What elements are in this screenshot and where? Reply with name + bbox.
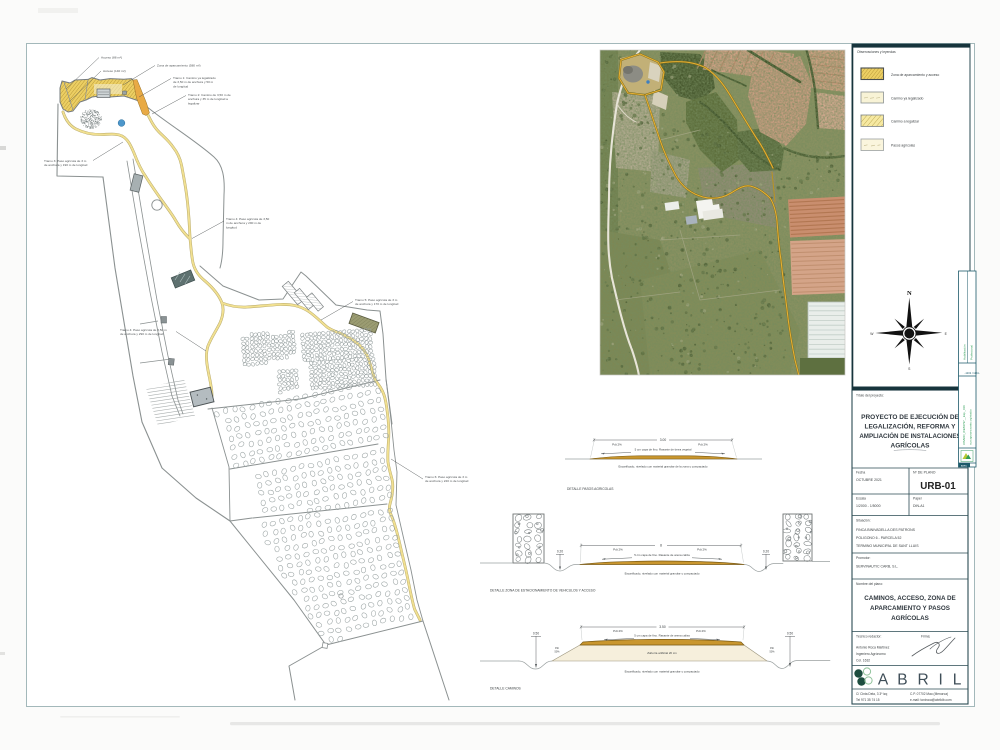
svg-text:50%: 50% (769, 650, 775, 653)
svg-text:PROYECTO DE EJECUCIÓN DE: PROYECTO DE EJECUCIÓN DE (861, 412, 959, 421)
svg-text:e-mail: toniroca@abrildb.com: e-mail: toniroca@abrildb.com (910, 698, 952, 702)
svg-text:AGRÍCOLAS: AGRÍCOLAS (891, 613, 929, 622)
svg-text:N: N (907, 290, 912, 297)
svg-text:FINCA BINIVADELLA DES PATRONS: FINCA BINIVADELLA DES PATRONS (856, 528, 916, 532)
svg-text:Habilitación: Habilitación (963, 344, 967, 360)
svg-text:3.00: 3.00 (660, 438, 667, 442)
svg-text:C.P. 07702 Mao (Menorca): C.P. 07702 Mao (Menorca) (910, 692, 948, 696)
svg-text:Escarificado, nivelado con mat: Escarificado, nivelado con material gran… (625, 572, 700, 576)
svg-text:Ingeniero Agrónomo: Ingeniero Agrónomo (856, 652, 886, 656)
svg-text:Zona de aparcamiento y acceso: Zona de aparcamiento y acceso (891, 73, 939, 77)
svg-text:longitud: longitud (226, 225, 237, 229)
svg-text:0.50: 0.50 (787, 631, 793, 635)
svg-text:Nº DE PLANO: Nº DE PLANO (913, 471, 936, 475)
svg-text:AMPLIACIÓN DE INSTALACIONES: AMPLIACIÓN DE INSTALACIONES (859, 432, 960, 440)
svg-text:APARCAMIENTO Y PASOS: APARCAMIENTO Y PASOS (870, 605, 950, 612)
svg-text:URB-01: URB-01 (920, 481, 956, 492)
svg-text:de anchura y 290 m de longitud: de anchura y 290 m de longitud (120, 332, 164, 336)
svg-text:POLIGONO 6 - PARCELA 52: POLIGONO 6 - PARCELA 52 (856, 536, 902, 540)
svg-text:DETALLE PASOS AGRICOLAS: DETALLE PASOS AGRICOLAS (567, 487, 614, 491)
svg-text:-1202 / 1141-: -1202 / 1141- (965, 371, 980, 375)
svg-text:Zahorra artificial 20 cm: Zahorra artificial 20 cm (647, 651, 677, 655)
svg-text:SERVINAUTIC CARB, S.L.: SERVINAUTIC CARB, S.L. (856, 565, 898, 569)
svg-text:0.20: 0.20 (763, 549, 769, 553)
svg-text:Observaciones y leyendas: Observaciones y leyendas (857, 50, 896, 54)
svg-text:DETALLE ZONA DE ESTACIONAMIENT: DETALLE ZONA DE ESTACIONAMIENTO DE VEHIC… (490, 589, 596, 593)
svg-text:OCTUBRE 2021: OCTUBRE 2021 (856, 478, 882, 482)
svg-text:DIN-A1: DIN-A1 (913, 504, 925, 508)
svg-text:Promotor:: Promotor: (856, 556, 871, 560)
svg-text:ABRIL: ABRIL (961, 464, 968, 467)
svg-text:5 cm capa de fino. Rasante de: 5 cm capa de fino. Rasante de arena cali… (634, 634, 690, 638)
svg-text:0.50: 0.50 (533, 631, 539, 635)
svg-text:VISADO_WEB3797__Exp._039: VISADO_WEB3797__Exp._039 (962, 405, 966, 445)
svg-text:Pdt 2%: Pdt 2% (613, 629, 623, 633)
svg-text:Título del proyecto:: Título del proyecto: (856, 394, 884, 398)
svg-text:de anchura y 220 m de longitud: de anchura y 220 m de longitud (425, 479, 469, 483)
svg-text:Tel 971 35 74 15: Tel 971 35 74 15 (856, 698, 880, 702)
svg-text:Acceso (140 m²): Acceso (140 m²) (103, 69, 126, 73)
svg-text:50%: 50% (554, 650, 560, 653)
svg-text:Fecha: Fecha (856, 471, 865, 475)
svg-text:Nombre del plano:: Nombre del plano: (856, 582, 883, 586)
svg-text:Col. 1632: Col. 1632 (856, 659, 870, 663)
svg-text:Pdt 2%: Pdt 2% (613, 548, 623, 552)
svg-text:Antonio Roca Martinez: Antonio Roca Martinez (856, 646, 890, 650)
svg-text:A B R I L: A B R I L (878, 672, 964, 689)
svg-text:Firma:: Firma: (921, 635, 930, 639)
svg-text:Escala: Escala (856, 497, 866, 501)
svg-text:Pdt 2%: Pdt 2% (698, 443, 708, 447)
svg-text:www.agronomoscentro.org/visado: www.agronomoscentro.org/visados (970, 408, 973, 445)
svg-text:Camino a legalizar: Camino a legalizar (891, 120, 920, 124)
svg-text:LEGALIZACIÓN, REFORMA Y: LEGALIZACIÓN, REFORMA Y (865, 422, 957, 431)
svg-text:AGRÍCOLAS: AGRÍCOLAS (891, 441, 931, 450)
svg-text:Situación:: Situación: (856, 519, 871, 523)
svg-text:Camino ya legalizado: Camino ya legalizado (891, 96, 924, 100)
svg-text:Papel: Papel (913, 497, 922, 501)
svg-text:0.20: 0.20 (557, 549, 563, 553)
svg-text:5 cm capa de fino. Rasante de: 5 cm capa de fino. Rasante de arena cali… (634, 553, 690, 557)
svg-text:Pdt 2%: Pdt 2% (696, 629, 706, 633)
svg-text:5 cm capa de fino. Rasante de: 5 cm capa de fino. Rasante de tierra veg… (635, 448, 692, 452)
svg-text:Acceso (88 m²): Acceso (88 m²) (101, 56, 122, 60)
svg-text:8: 8 (660, 544, 662, 548)
svg-text:de longitud: de longitud (173, 84, 188, 88)
svg-text:de anchura y 190 m de longitud: de anchura y 190 m de longitud (44, 163, 88, 167)
svg-text:Pasos agrícolas: Pasos agrícolas (891, 143, 915, 147)
svg-text:Zona de aparcamiento (580 m²): Zona de aparcamiento (580 m²) (157, 64, 201, 68)
svg-text:legalizar: legalizar (188, 101, 200, 105)
svg-text:Pdt 2%: Pdt 2% (697, 548, 707, 552)
svg-text:Profesional: Profesional (970, 345, 974, 360)
svg-text:3.50: 3.50 (659, 625, 666, 629)
svg-text:DETALLE CAMINOS: DETALLE CAMINOS (490, 687, 522, 691)
svg-text:CAMINOS, ACCESO, ZONA DE: CAMINOS, ACCESO, ZONA DE (864, 595, 956, 602)
svg-text:C/ Cinta Dela, 3 3º izq: C/ Cinta Dela, 3 3º izq (856, 692, 888, 696)
svg-text:Escarificado, nivelado con mat: Escarificado, nivelado con material gran… (618, 465, 707, 469)
svg-text:Técnico redactor:: Técnico redactor: (856, 635, 882, 639)
svg-text:Escarificado, nivelado con mat: Escarificado, nivelado con material gran… (625, 670, 700, 674)
svg-text:Pdt 2%: Pdt 2% (612, 443, 622, 447)
svg-text:1/2000 - 1/5000: 1/2000 - 1/5000 (856, 504, 881, 508)
svg-text:TERMINO MUNICIPAL DE SANT LLUI: TERMINO MUNICIPAL DE SANT LLUIS (856, 544, 919, 548)
svg-text:de anchura y 170 m de longitud: de anchura y 170 m de longitud (355, 302, 399, 306)
